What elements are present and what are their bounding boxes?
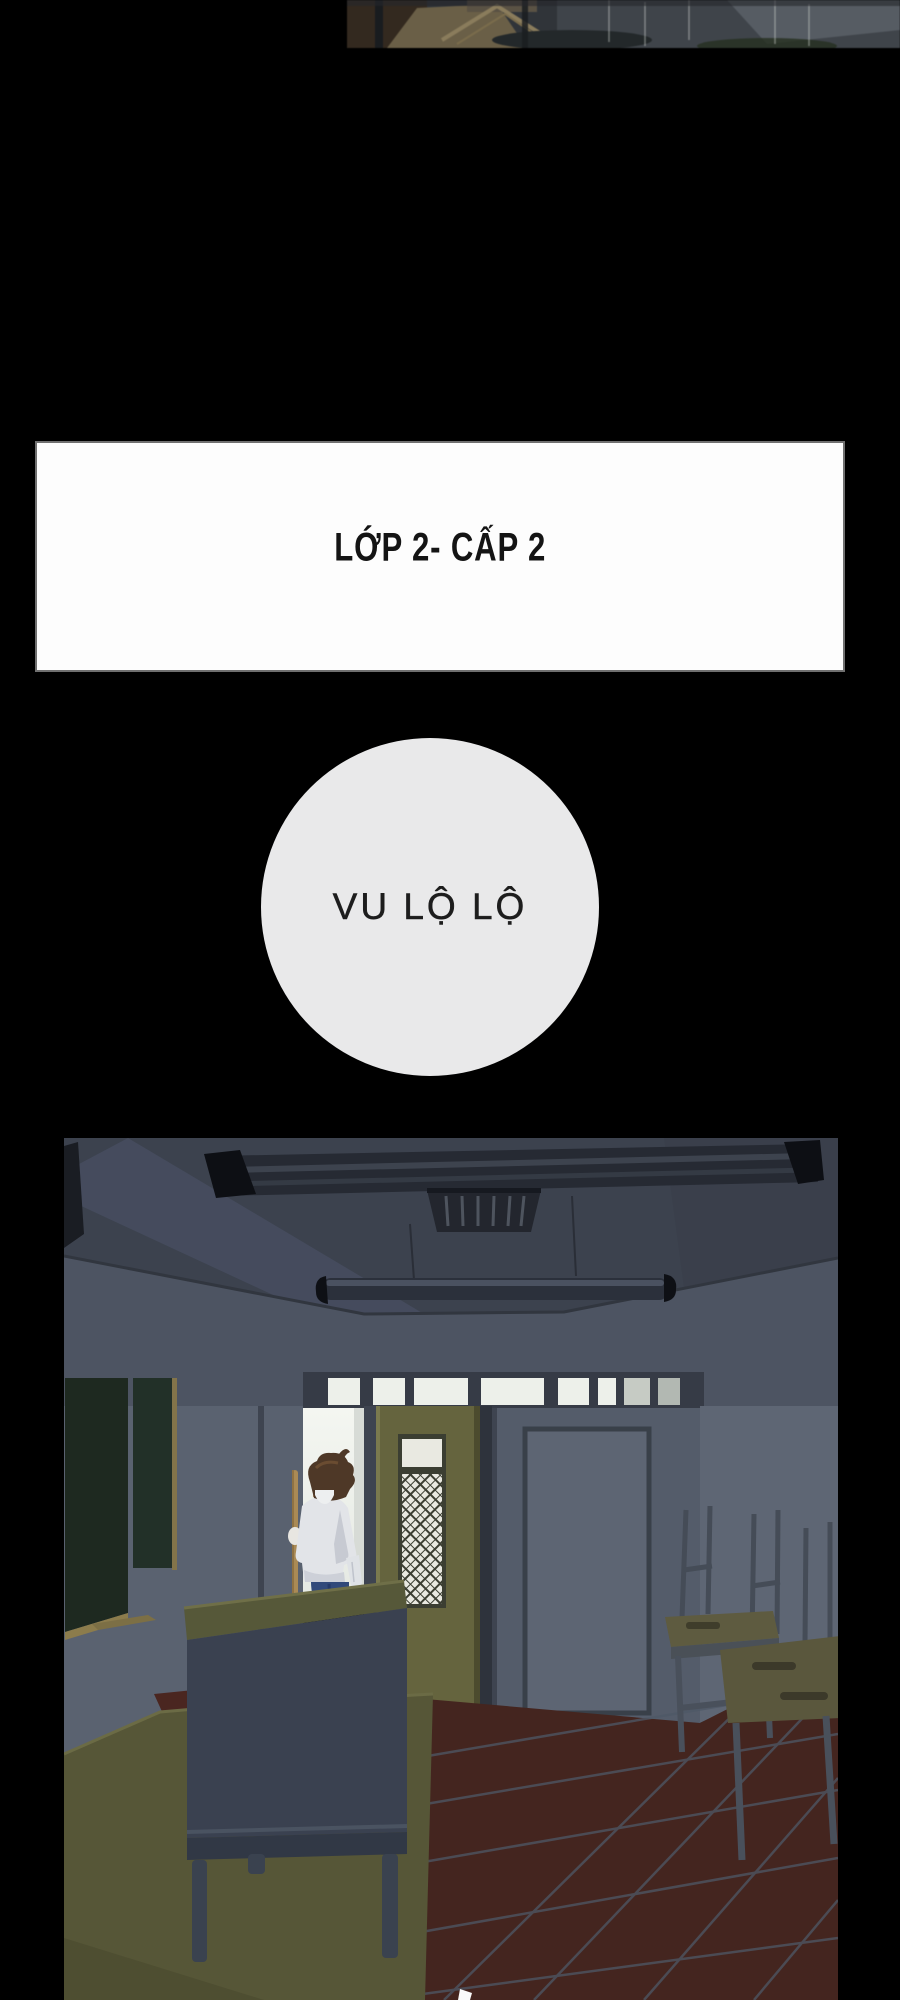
name-text: VU LỘ LỘ [333, 886, 528, 928]
caption-box: LỚP 2- CẤP 2 [35, 441, 845, 672]
caption-text: LỚP 2- CẤP 2 [334, 526, 546, 572]
name-bubble: VU LỘ LỘ [261, 738, 599, 1076]
top-photo-fragment [347, 0, 900, 48]
classroom-illustration [64, 1138, 838, 2000]
air-vent [427, 1188, 541, 1232]
comic-page: LỚP 2- CẤP 2 VU LỘ LỘ [0, 0, 900, 2000]
transom-windows [303, 1372, 704, 1410]
